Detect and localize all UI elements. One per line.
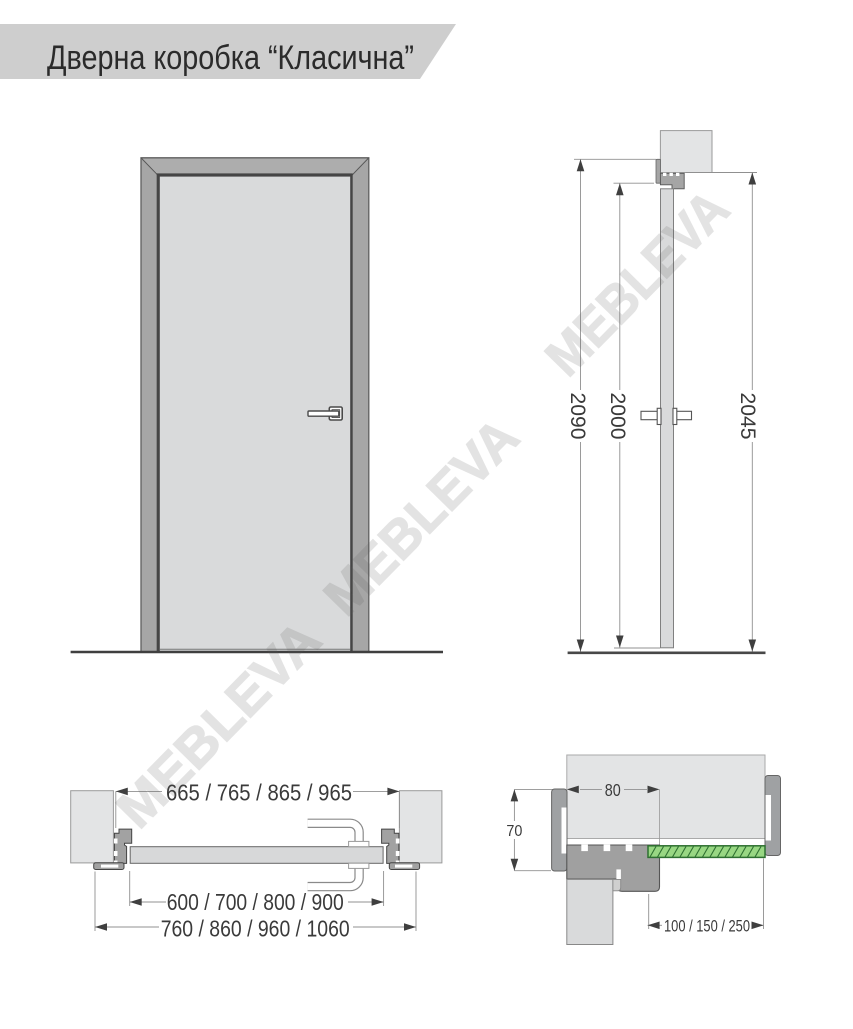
svg-text:Дверна коробка “Класична”: Дверна коробка “Класична”	[47, 39, 414, 77]
svg-text:70: 70	[506, 823, 522, 840]
svg-text:MEBLEVA: MEBLEVA	[534, 179, 740, 387]
svg-text:600 / 700 / 800 / 900: 600 / 700 / 800 / 900	[167, 889, 344, 915]
svg-text:2090: 2090	[566, 393, 589, 440]
svg-text:2000: 2000	[606, 393, 629, 440]
svg-text:100 / 150 / 250: 100 / 150 / 250	[664, 916, 750, 935]
svg-text:760 / 860 / 960 / 1060: 760 / 860 / 960 / 1060	[161, 915, 350, 941]
svg-text:80: 80	[605, 780, 621, 800]
svg-text:2045: 2045	[736, 393, 759, 440]
